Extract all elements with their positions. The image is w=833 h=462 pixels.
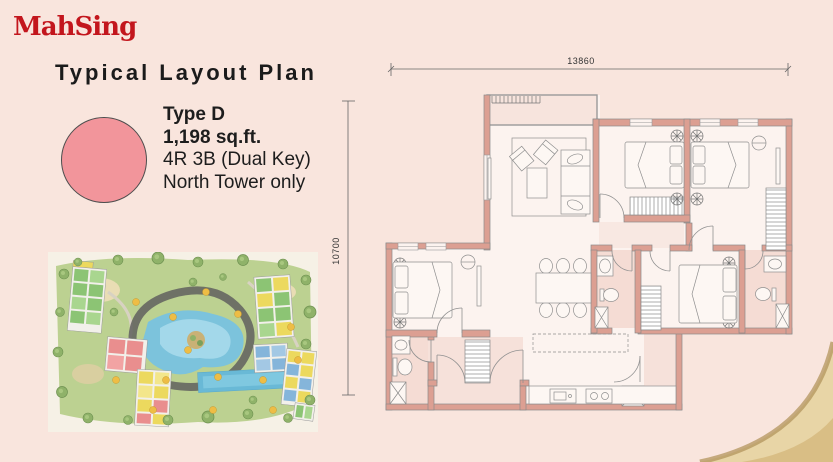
unit-type-label: Type D — [163, 104, 311, 127]
mahsing-logo: MahSing — [13, 12, 136, 42]
unit-info-block: Type D 1,198 sq.ft. 4R 3B (Dual Key) Nor… — [163, 104, 311, 194]
unit-type-marker — [61, 117, 147, 203]
type-d-color-swatch — [61, 117, 147, 203]
site-masterplan-image — [48, 252, 318, 432]
floorplan-drawing: 13860 10700 — [320, 48, 833, 430]
unit-availability: North Tower only — [163, 172, 311, 195]
dimension-height-label: 10700 — [331, 237, 341, 265]
dining-set — [536, 259, 591, 318]
page-title: Typical Layout Plan — [55, 60, 317, 86]
dimension-width-label: 13860 — [567, 56, 595, 66]
unit-area: 1,198 sq.ft. — [163, 127, 311, 150]
unit-layout: 4R 3B (Dual Key) — [163, 149, 311, 172]
